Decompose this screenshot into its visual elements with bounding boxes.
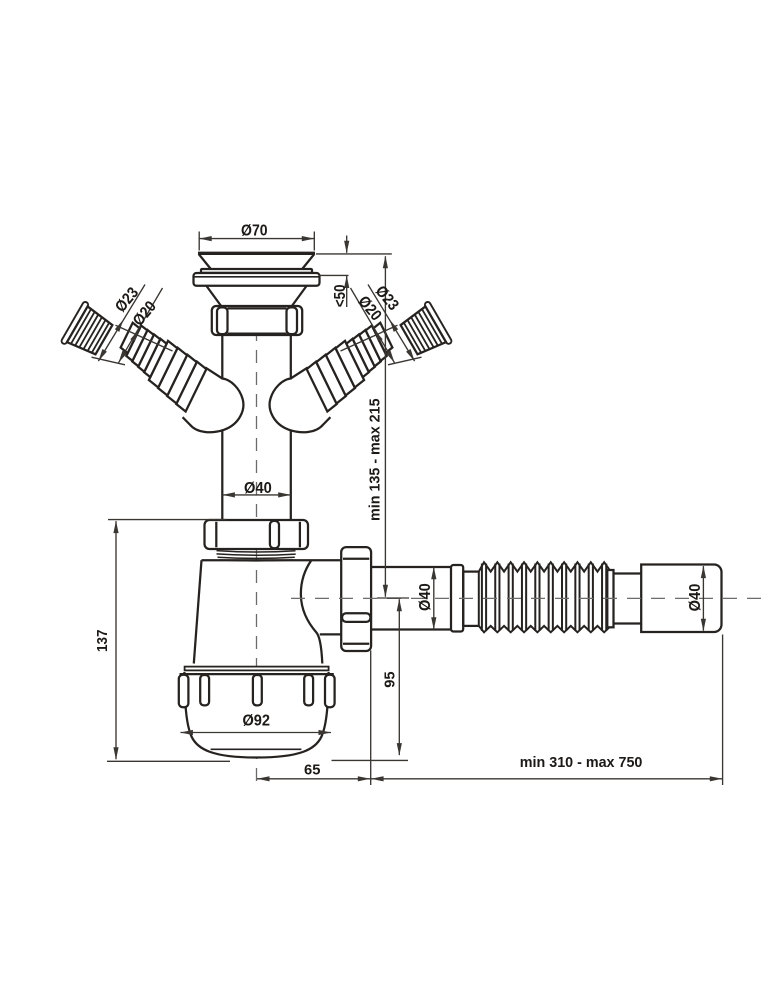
svg-text:Ø92: Ø92 <box>242 713 270 730</box>
svg-text:min 135 - max 215: min 135 - max 215 <box>368 398 384 521</box>
svg-text:95: 95 <box>383 671 399 687</box>
svg-text:min 310 - max 750: min 310 - max 750 <box>520 755 643 771</box>
svg-text:65: 65 <box>304 763 320 779</box>
svg-text:137: 137 <box>95 630 111 652</box>
svg-text:Ø70: Ø70 <box>241 222 268 239</box>
svg-text:Ø40: Ø40 <box>687 583 704 611</box>
svg-text:<50: <50 <box>332 284 349 307</box>
svg-text:Ø40: Ø40 <box>417 583 434 611</box>
svg-text:Ø40: Ø40 <box>244 480 272 497</box>
